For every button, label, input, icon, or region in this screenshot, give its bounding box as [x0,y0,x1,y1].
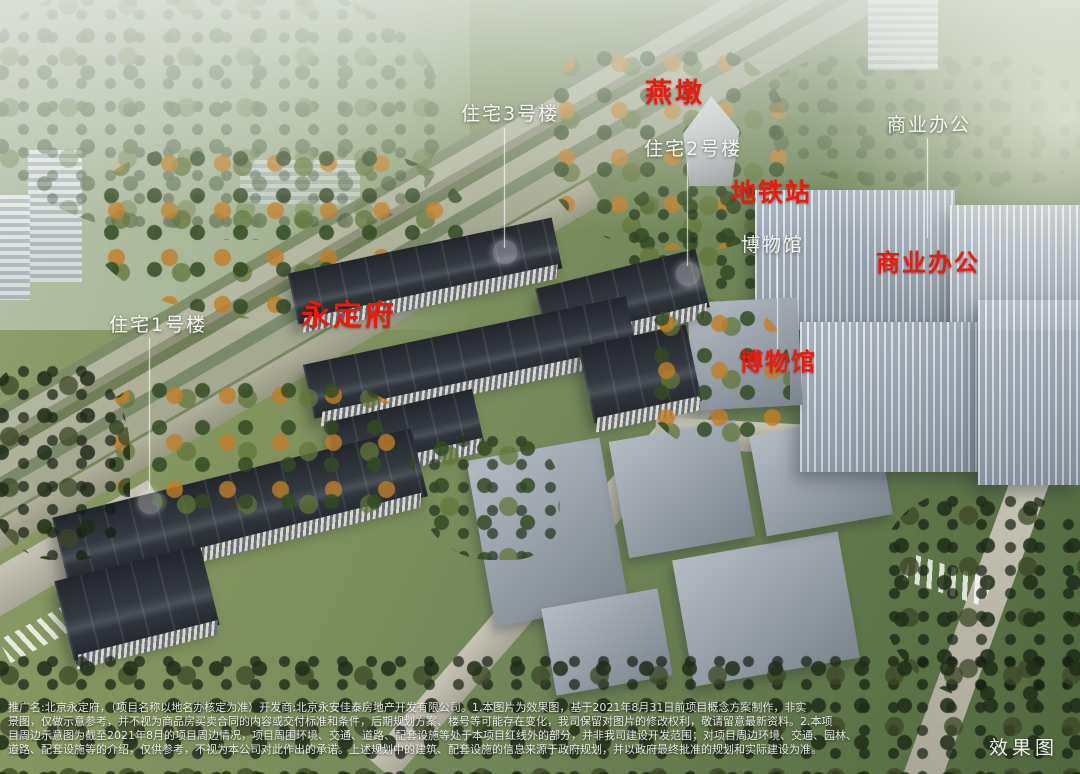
label-museum: 博物馆 [739,350,817,374]
callout-circle [676,262,700,286]
callout-circle [493,240,517,264]
label-residential-1: 住宅1号楼 [109,316,207,335]
callout-line-commercial [927,138,928,238]
label-yongdingfu: 永定府 [301,301,397,330]
callout-circle [138,490,162,514]
sun-glare [780,0,1080,330]
callout-line-residential-3 [504,128,505,248]
label-residential-3: 住宅3号楼 [461,105,559,124]
callout-line-residential-2 [687,163,688,266]
callout-line-museum [777,258,778,350]
disclaimer-line: 景图，仅做示意参考，并不视为商品房买卖合同的内容或交付标准和条件，后期规划方案、… [8,715,833,729]
rendering-watermark: 效果图 [989,733,1058,760]
aerial-rendering: 燕墩 住宅3号楼 住宅2号楼 商业办公 地铁站 博物馆 商业办公 永定府 博物馆… [0,0,1080,774]
disclaimer-line: 目周边示意图为截至2021年8月的项目周边情况，项目周围环境、交通、道路、配套设… [8,729,857,743]
callout-line-residential-1 [149,338,150,490]
label-residential-2: 住宅2号楼 [644,140,742,159]
label-museum-far: 博物馆 [741,236,804,255]
tree-cluster [420,430,560,560]
label-yandun: 燕墩 [645,80,705,107]
label-commercial-office: 商业办公 [876,251,980,275]
tree-cluster [0,360,130,560]
label-metro-station: 地铁站 [731,180,812,205]
disclaimer-line: 推广名:北京永定府，（项目名称以地名办核定为准）开发商:北京永安佳泰房地产开发有… [8,701,806,715]
disclaimer-line: 道路、配套设施等的介绍，仅供参考，不视为本公司对此作出的承诺。上述规划中的建筑、… [8,743,822,757]
commercial-building [800,322,990,472]
label-commercial-office-far: 商业办公 [887,116,971,135]
